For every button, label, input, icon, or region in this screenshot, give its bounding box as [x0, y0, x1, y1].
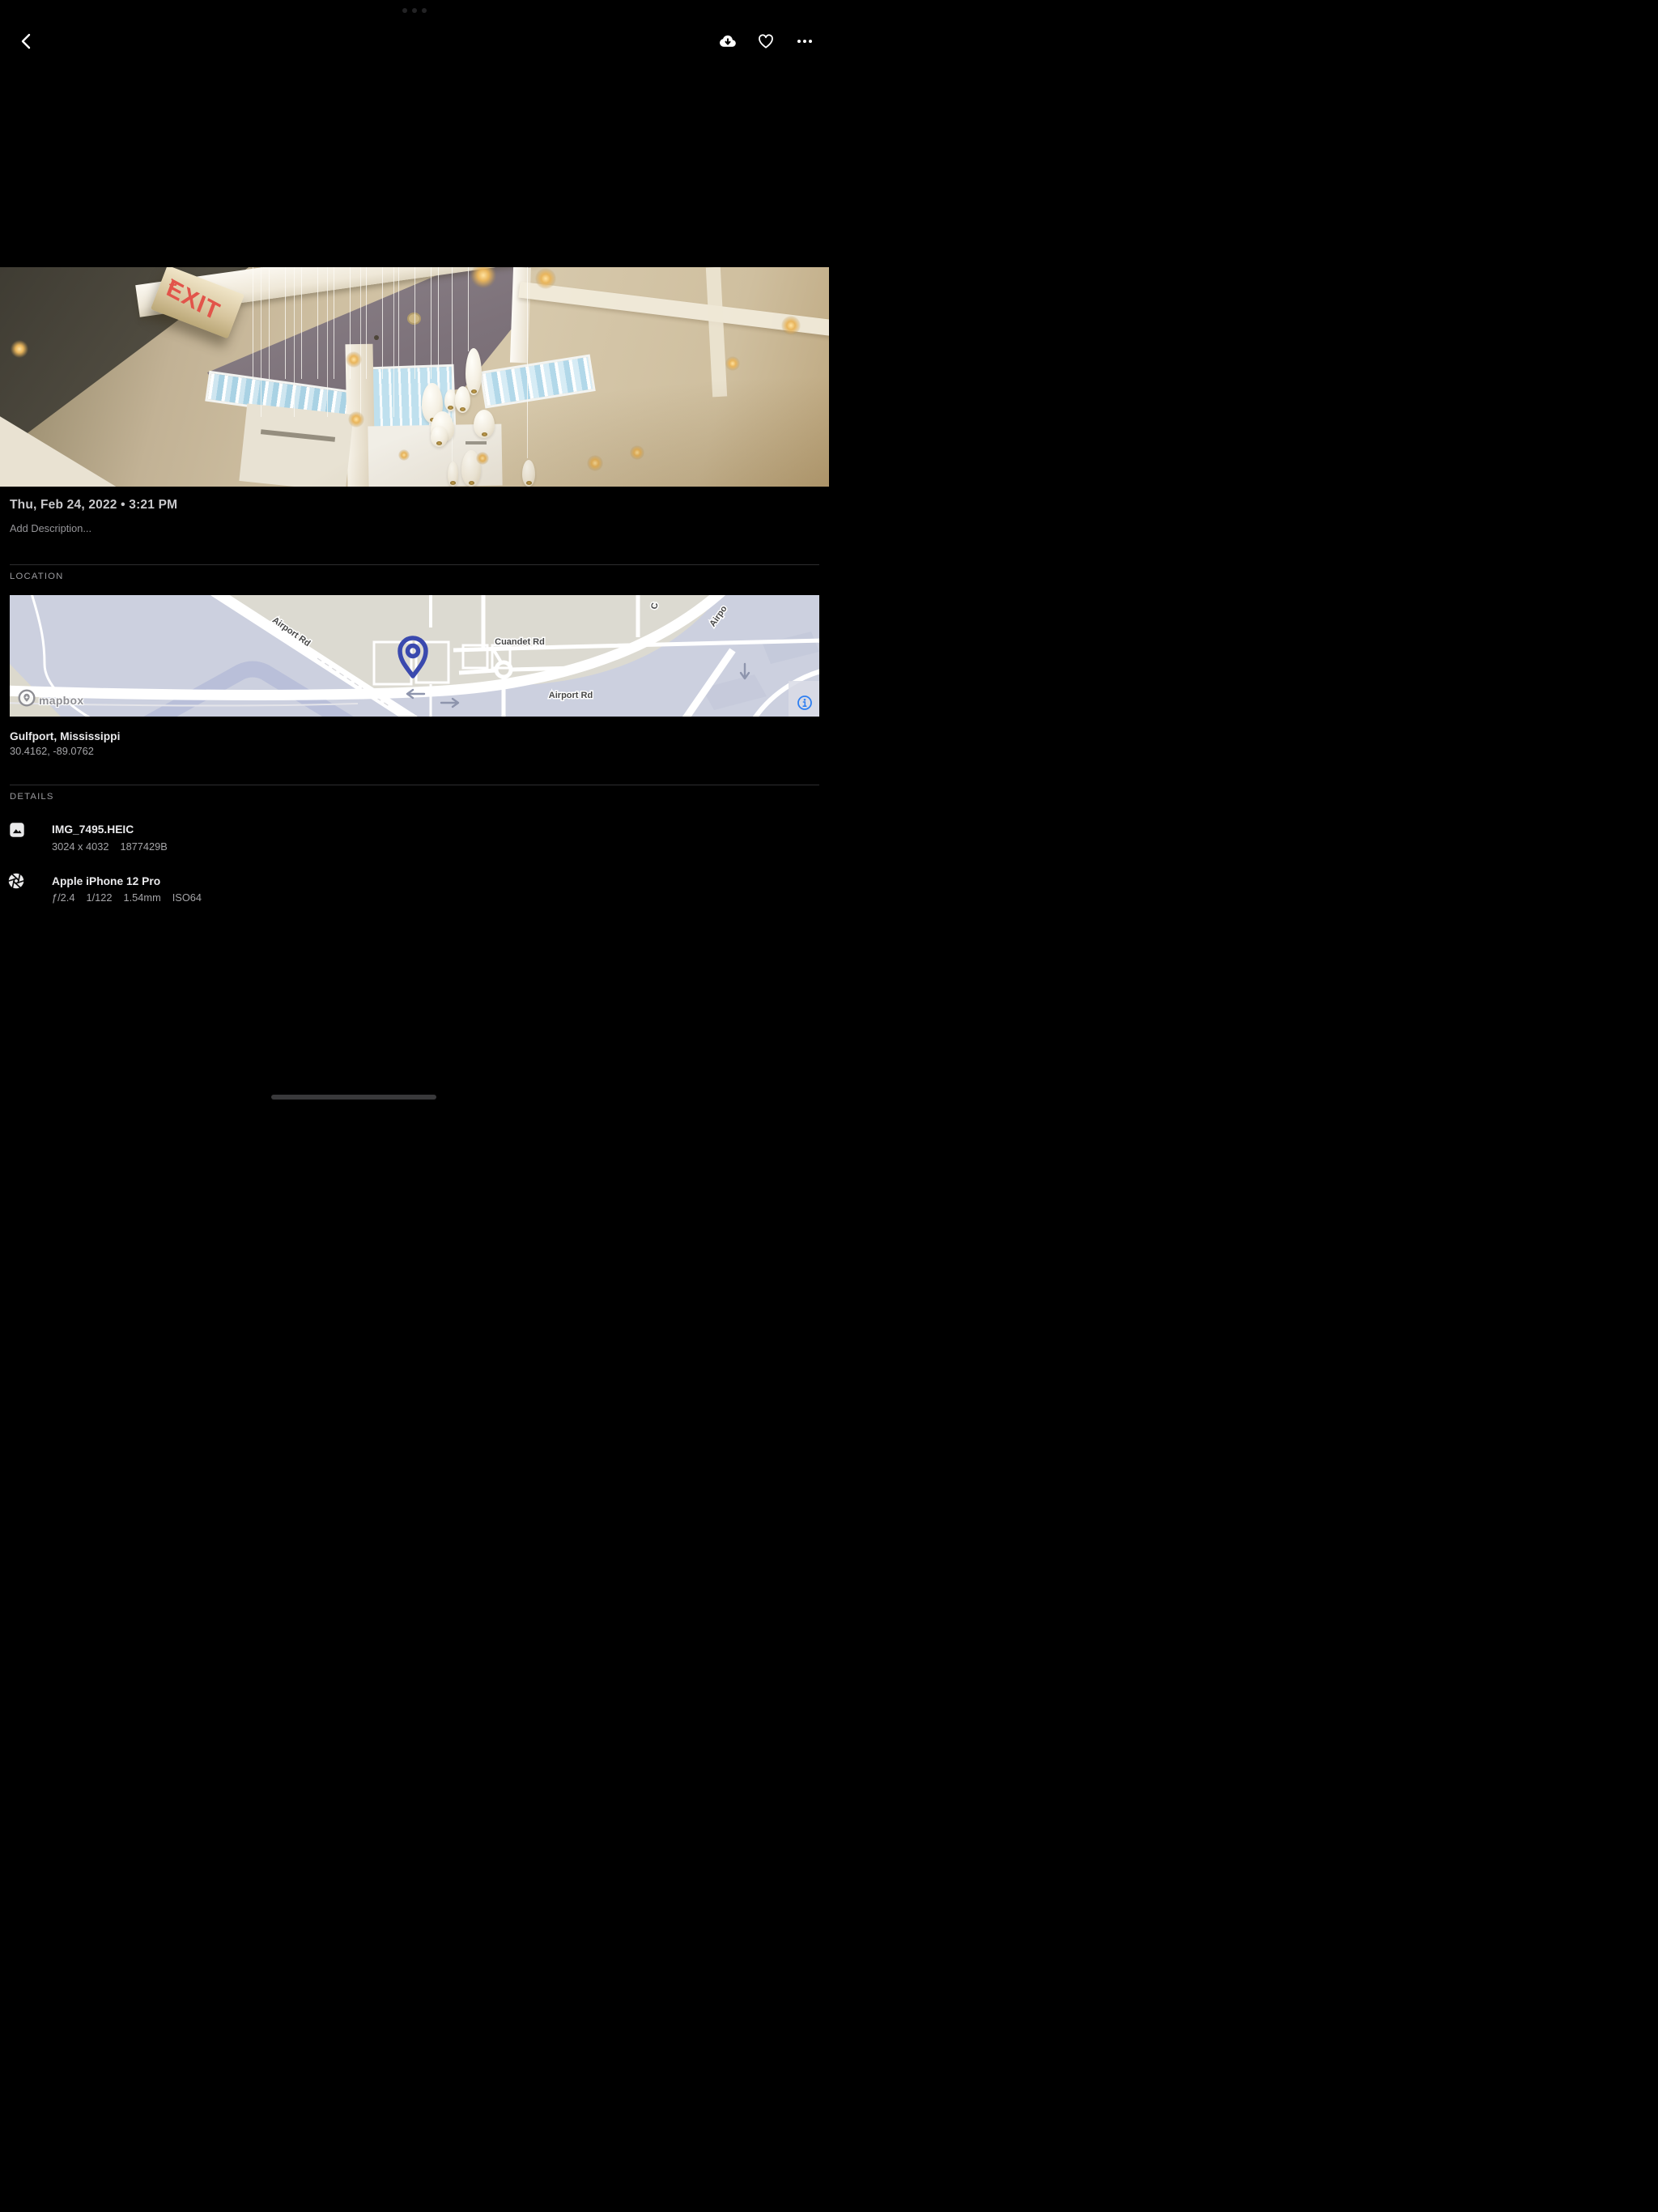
file-name: IMG_7495.HEIC	[52, 823, 134, 836]
camera-aperture: ƒ/2.4	[52, 891, 74, 904]
info-icon	[797, 695, 813, 711]
description-field[interactable]: Add Description...	[10, 522, 91, 534]
file-row-icon-wrap	[6, 821, 28, 842]
details-section-label: DETAILS	[10, 792, 54, 802]
divider	[10, 564, 819, 565]
camera-name: Apple iPhone 12 Pro	[52, 875, 160, 887]
photo-detail-page: EXIT> Thu, Feb 24, 2022 • 3:21 PM Add De…	[0, 0, 829, 1106]
map-info-button[interactable]	[797, 695, 813, 711]
photo-shape	[0, 267, 829, 487]
file-size: 1877429B	[120, 840, 167, 853]
camera-focal-length: 1.54mm	[124, 891, 161, 904]
street-label: Airport Rd	[549, 691, 593, 700]
download-button[interactable]	[717, 32, 738, 53]
location-section-label: LOCATION	[10, 572, 64, 581]
cloud-download-icon	[717, 31, 738, 56]
heart-icon	[756, 32, 776, 55]
location-coordinates: 30.4162, -89.0762	[10, 745, 94, 757]
back-button[interactable]	[16, 32, 37, 53]
chevron-left-icon	[17, 32, 36, 55]
mapbox-wordmark: mapbox	[39, 694, 83, 707]
more-options-button[interactable]	[794, 32, 815, 53]
home-indicator[interactable]	[271, 1095, 436, 1100]
camera-row-icon-wrap	[6, 872, 27, 893]
multitask-indicator[interactable]	[402, 8, 427, 13]
street-label: Cuandet Rd	[495, 637, 545, 647]
ellipsis-icon	[795, 32, 814, 55]
camera-meta: ƒ/2.41/1221.54mmISO64	[52, 891, 213, 904]
image-file-icon	[8, 821, 26, 843]
file-dimensions: 3024 x 4032	[52, 840, 108, 853]
location-place: Gulfport, Mississippi	[10, 730, 120, 742]
divider	[10, 785, 819, 785]
file-meta: 3024 x 40321877429B	[52, 840, 179, 853]
map-canvas: Airport Rd Cuandet Rd Airport Rd C Airpo	[10, 595, 819, 717]
mapbox-attribution[interactable]: mapbox	[18, 689, 83, 711]
mapbox-logo-icon	[18, 689, 36, 711]
photo[interactable]: EXIT>	[0, 267, 829, 487]
location-map[interactable]: Airport Rd Cuandet Rd Airport Rd C Airpo…	[10, 595, 819, 717]
aperture-icon	[6, 871, 26, 895]
photo-datetime: Thu, Feb 24, 2022 • 3:21 PM	[10, 498, 177, 513]
camera-iso: ISO64	[172, 891, 202, 904]
camera-shutter: 1/122	[86, 891, 112, 904]
favorite-button[interactable]	[755, 32, 776, 53]
